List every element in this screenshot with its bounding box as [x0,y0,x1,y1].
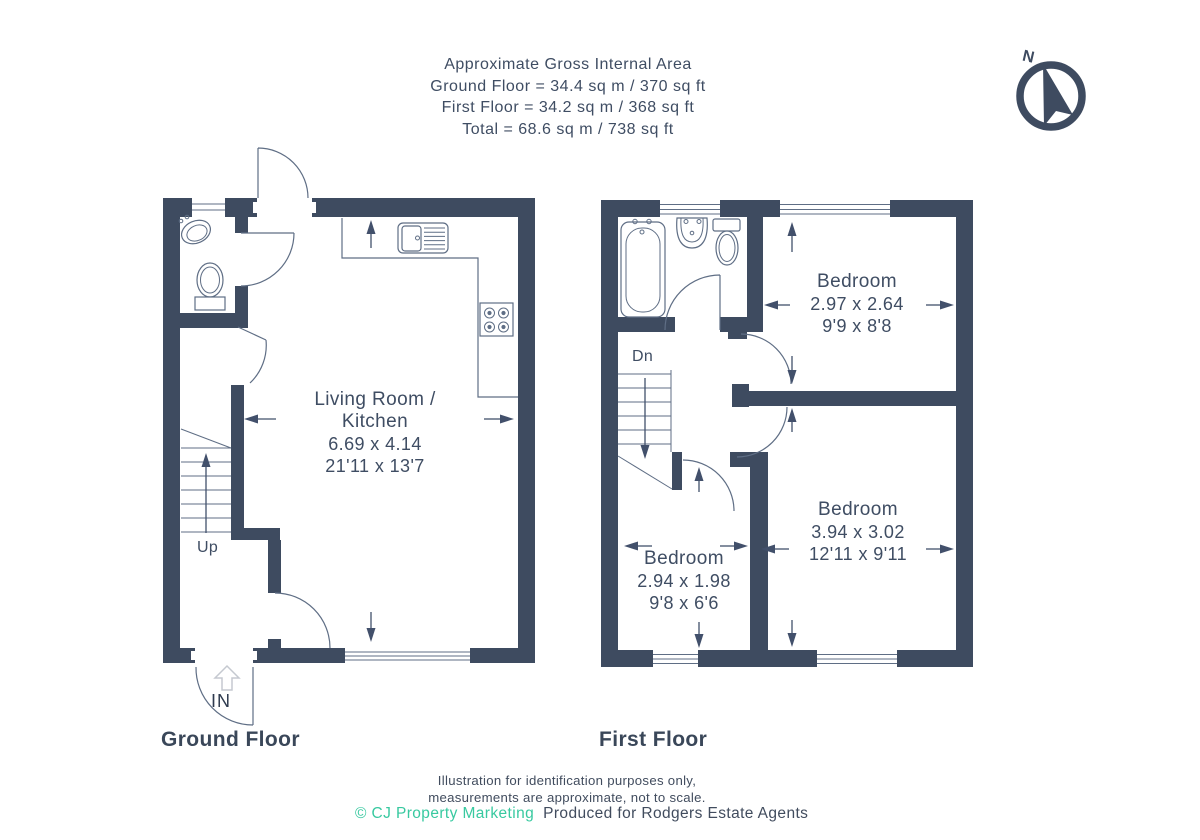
credit-marketing: © CJ Property Marketing [355,805,534,822]
area-ground-floor: Ground Floor = 34.4 sq m / 370 sq ft [268,76,868,98]
gf-back-door-arc [258,148,308,198]
bedroom-small-label: Bedroom 2.94 x 1.98 9'8 x 6'6 [604,548,764,614]
ff-stairs-down-arrow [641,445,650,459]
ff-toilet-icon [713,219,740,265]
floorplan-page: N Approximate Gross Internal Area Ground… [0,0,1200,840]
ff-bathtub-icon [621,219,665,317]
gf-wc-basin-icon [178,215,214,248]
gf-entrance-arrow-icon [215,666,239,690]
first-floor-title: First Floor [599,728,707,752]
gf-stairs [181,429,231,533]
gf-wc-window [192,198,225,217]
disclaimer-line1: Illustration for identification purposes… [267,772,867,789]
ff-bedroom-rear-door-arc [737,407,787,457]
gf-stairs-up-arrow [202,453,211,467]
ff-bedroom-front-door-arc [741,334,791,384]
ff-basin-icon [677,218,708,248]
gf-living-door-arc [275,593,330,648]
ff-stairs [618,370,672,489]
area-total: Total = 68.6 sq m / 738 sq ft [268,119,868,141]
ground-floor-title: Ground Floor [161,728,300,752]
gf-kitchen-sink-icon [398,223,448,253]
disclaimer-line2: measurements are approximate, not to sca… [267,789,867,806]
compass-icon: N [1020,48,1082,127]
stairs-up-label: Up [197,539,218,557]
disclaimer-block: Illustration for identification purposes… [267,772,867,806]
gf-toilet-icon [195,263,225,310]
gf-wc-door-arc [241,233,294,286]
ff-bedroom-small-door-arc [683,460,734,511]
gf-hob-icon [480,303,513,336]
credit-agents: Produced for Rodgers Estate Agents [543,805,808,822]
living-room-label: Living Room / Kitchen 6.69 x 4.14 21'11 … [255,389,495,477]
gross-internal-area-block: Approximate Gross Internal Area Ground F… [268,54,868,140]
bedroom-rear-label: Bedroom 3.94 x 3.02 12'11 x 9'11 [778,499,938,565]
stairs-down-label: Dn [632,348,653,366]
credit-line: © CJ Property MarketingProduced for Rodg… [355,805,808,823]
area-title: Approximate Gross Internal Area [268,54,868,76]
entrance-label: IN [211,691,231,712]
area-first-floor: First Floor = 34.2 sq m / 368 sq ft [268,97,868,119]
bedroom-front-label: Bedroom 2.97 x 2.64 9'9 x 8'8 [777,271,937,337]
gf-hall-door-arc [238,327,266,383]
compass-north-label: N [1021,48,1036,67]
